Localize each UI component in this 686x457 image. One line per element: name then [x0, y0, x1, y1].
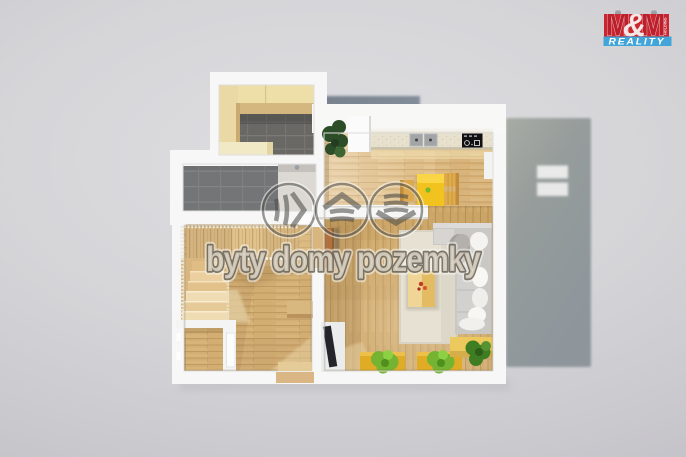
svg-text:REALITY: REALITY — [609, 37, 666, 48]
svg-text:HOLDING: HOLDING — [664, 17, 668, 35]
svg-text:byty domy pozemky: byty domy pozemky — [206, 240, 481, 279]
